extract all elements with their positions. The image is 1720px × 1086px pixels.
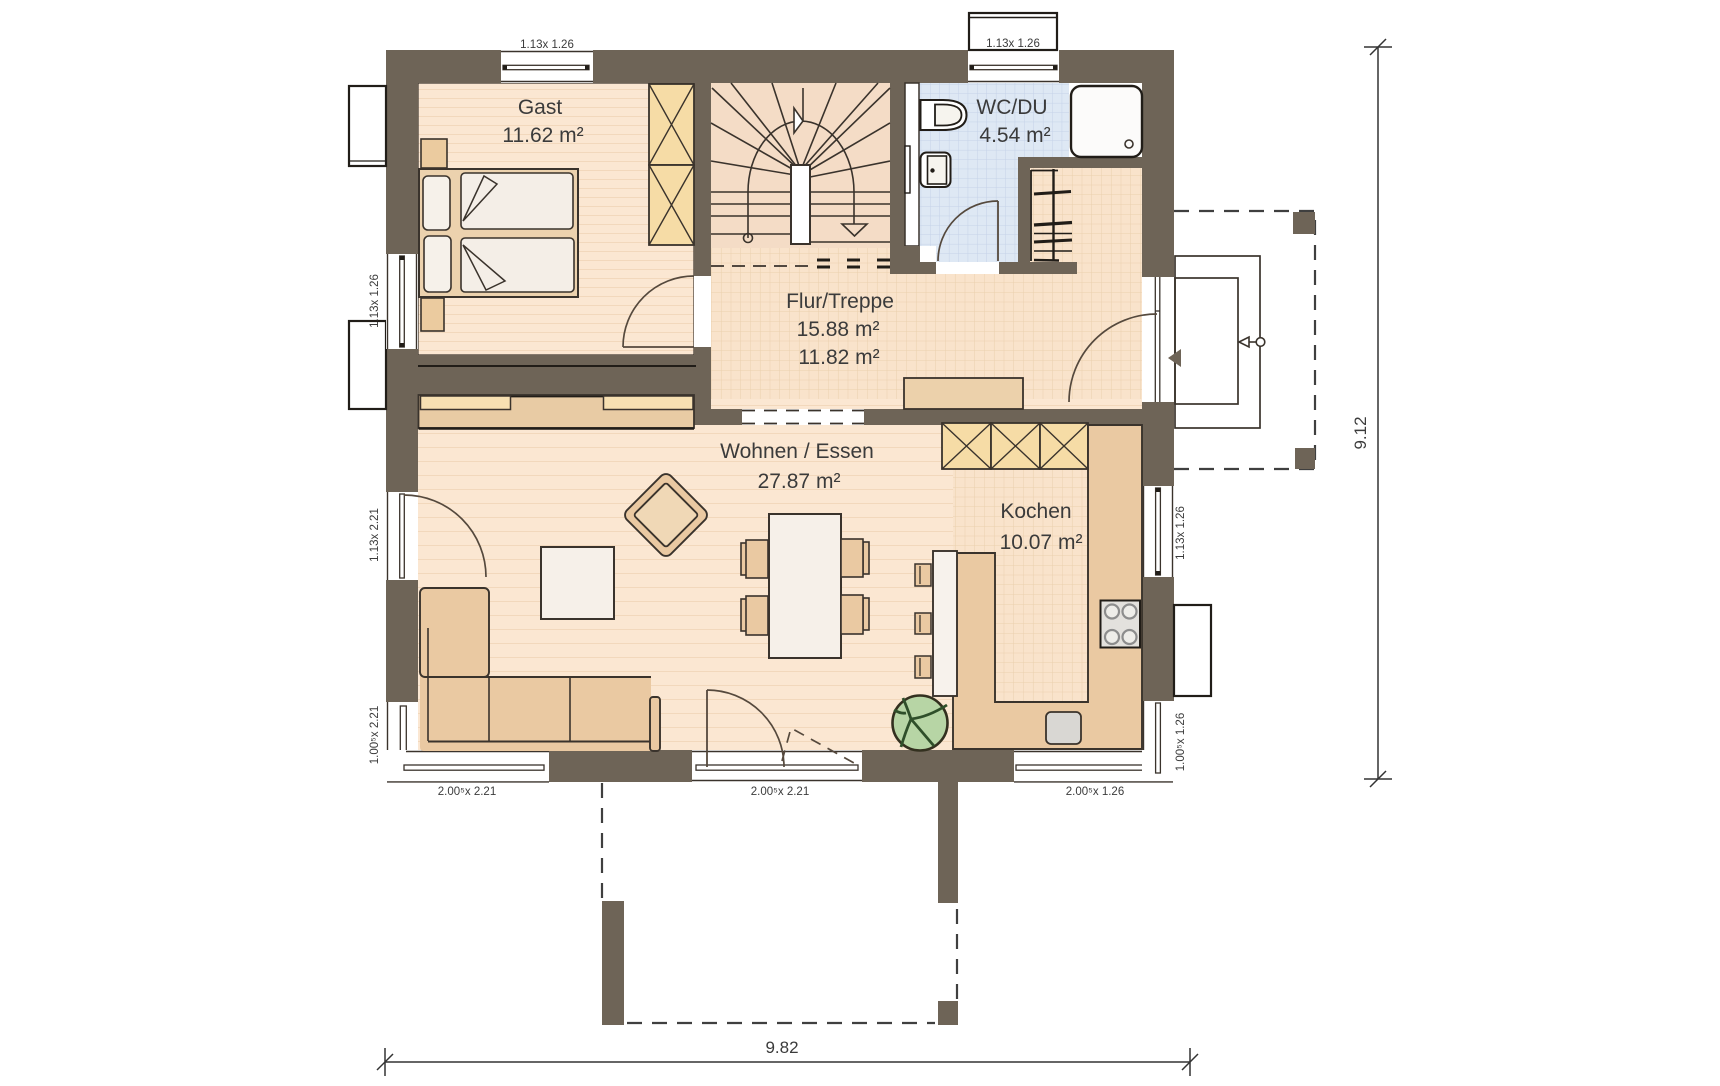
svg-text:Gast: Gast [518,96,563,119]
svg-text:10.07 m²: 10.07 m² [1000,531,1083,554]
svg-text:27.87 m²: 27.87 m² [758,470,841,493]
svg-text:1.00⁵x 1.26: 1.00⁵x 1.26 [1175,713,1187,771]
svg-text:2.00⁵x 1.26: 2.00⁵x 1.26 [1066,786,1124,798]
svg-text:4.54 m²: 4.54 m² [979,124,1050,147]
svg-text:11.62 m²: 11.62 m² [502,124,583,147]
svg-text:Kochen: Kochen [1000,500,1071,523]
svg-text:1.13x 1.26: 1.13x 1.26 [1175,506,1187,560]
svg-text:2.00⁵x 2.21: 2.00⁵x 2.21 [751,786,809,798]
svg-text:11.82 m²: 11.82 m² [798,346,879,369]
svg-text:Wohnen / Essen: Wohnen / Essen [720,440,874,463]
svg-text:15.88 m²: 15.88 m² [797,318,880,341]
svg-text:Flur/Treppe: Flur/Treppe [786,290,894,313]
svg-text:1.13x 2.21: 1.13x 2.21 [369,508,381,562]
svg-text:2.00⁵x 2.21: 2.00⁵x 2.21 [438,786,496,798]
svg-text:1.13x 1.26: 1.13x 1.26 [986,38,1040,50]
svg-text:1.13x 1.26: 1.13x 1.26 [369,274,381,328]
svg-text:1.13x 1.26: 1.13x 1.26 [520,39,574,51]
svg-text:WC/DU: WC/DU [976,96,1047,119]
svg-text:9.82: 9.82 [765,1038,798,1057]
svg-text:9.12: 9.12 [1351,416,1370,449]
svg-text:1.00⁵x 2.21: 1.00⁵x 2.21 [369,706,381,764]
